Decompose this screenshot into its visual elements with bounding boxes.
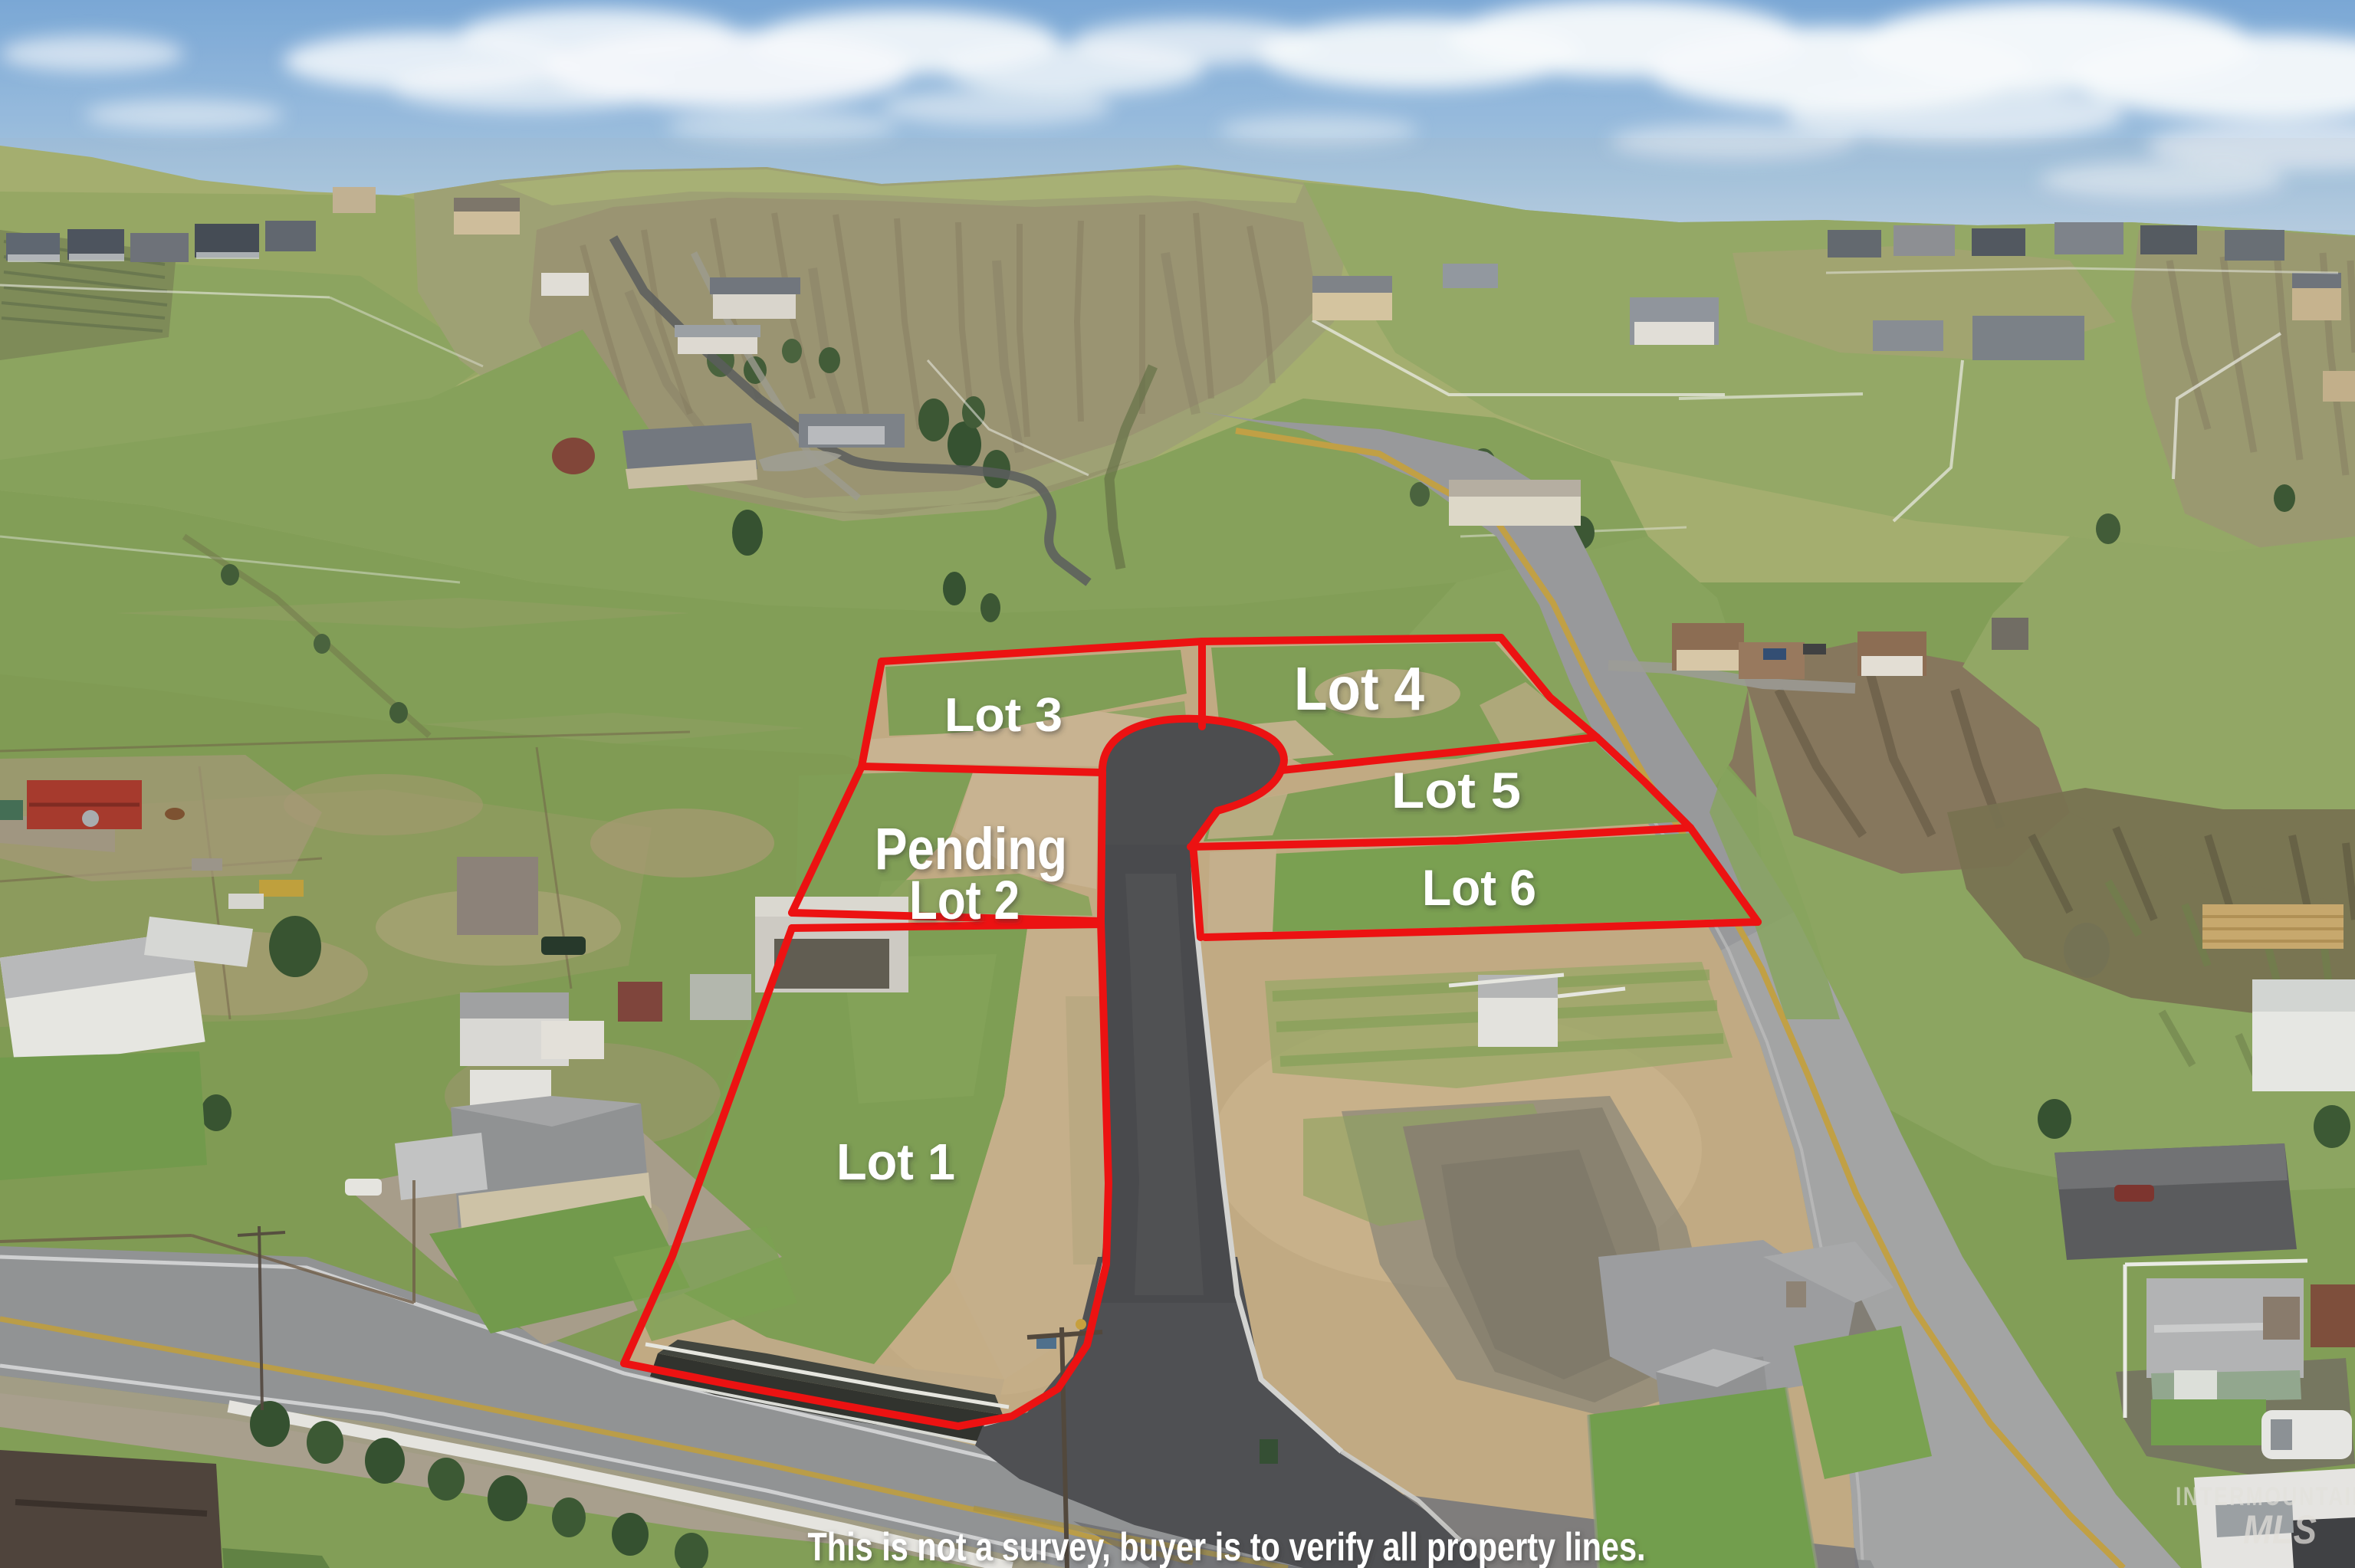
svg-text:Lot 2: Lot 2 bbox=[909, 871, 1020, 931]
svg-text:This is not a survey, buyer is: This is not a survey, buyer is to verify… bbox=[808, 1525, 1646, 1568]
svg-text:Lot 4: Lot 4 bbox=[1294, 654, 1424, 723]
svg-text:MLS: MLS bbox=[2243, 1507, 2317, 1553]
svg-text:Lot 3: Lot 3 bbox=[944, 689, 1063, 742]
svg-text:Lot 5: Lot 5 bbox=[1391, 762, 1521, 818]
svg-text:Lot 6: Lot 6 bbox=[1422, 859, 1536, 916]
svg-text:Lot 1: Lot 1 bbox=[836, 1133, 955, 1191]
